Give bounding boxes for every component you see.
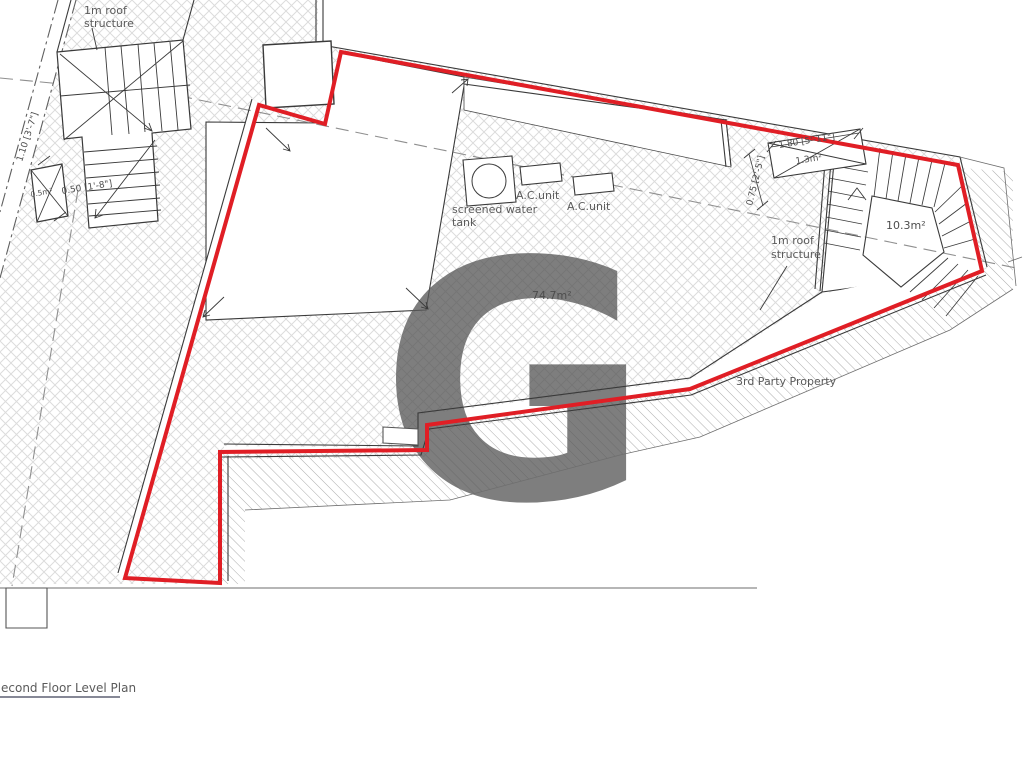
step-roof-box (383, 427, 418, 445)
drawing-title: econd Floor Level Plan (1, 681, 136, 695)
ac-unit-2-label: A.C.unit (567, 200, 611, 213)
water-tank (463, 156, 516, 206)
roof-structure-left-label-line1: 1m roof (84, 4, 128, 17)
ac-unit-1-box (520, 163, 562, 185)
roof-structure-right-label-line1: 1m roof (771, 234, 815, 247)
water-tank-label-line2: tank (452, 216, 477, 229)
small-roof-box (263, 41, 334, 108)
floor-plan-drawing: G (0, 0, 1024, 768)
ac-unit-2-box (573, 173, 614, 195)
watermark-letter: G (380, 192, 651, 576)
neighbor-box (6, 588, 47, 628)
ac-unit-1-label: A.C.unit (516, 189, 560, 202)
drawing-title-block: econd Floor Level Plan (0, 681, 136, 697)
stairwell-area-label: 10.3m² (886, 219, 926, 232)
water-tank-label-line1: screened water (452, 203, 538, 216)
roof-structure-right-label-line2: structure (771, 248, 821, 261)
third-party-label: 3rd Party Property (736, 375, 837, 388)
floor-plan-page: G (0, 0, 1024, 768)
roof-structure-left-label-line2: structure (84, 17, 134, 30)
main-terrace-area-label: 74.7m² (532, 289, 572, 302)
